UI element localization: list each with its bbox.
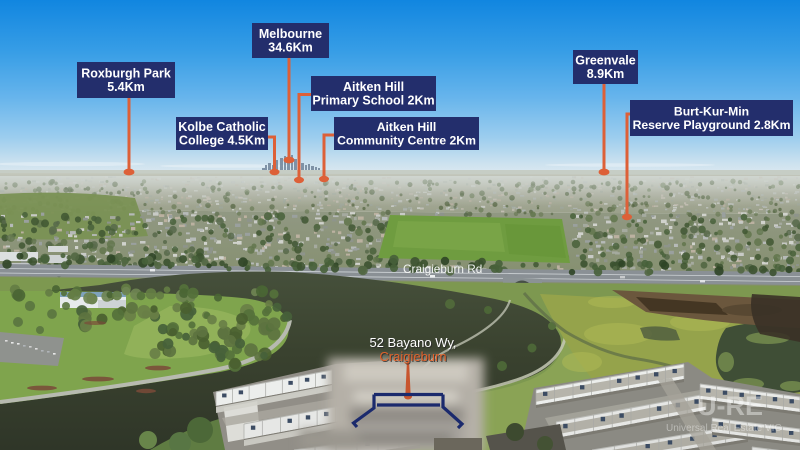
svg-text:Roxburgh Park: Roxburgh Park: [81, 67, 171, 81]
svg-text:Universal Real Estate VIC: Universal Real Estate VIC: [666, 423, 782, 434]
svg-text:College 4.5Km: College 4.5Km: [179, 134, 265, 148]
svg-text:Primary School 2Km: Primary School 2Km: [312, 94, 434, 108]
svg-text:Aitken Hill: Aitken Hill: [343, 80, 404, 94]
svg-text:52 Bayano Wy,: 52 Bayano Wy,: [369, 335, 456, 350]
svg-text:Craigieburn Rd: Craigieburn Rd: [403, 262, 482, 276]
svg-text:Melbourne: Melbourne: [259, 27, 322, 41]
svg-text:Aitken Hill: Aitken Hill: [377, 120, 437, 134]
svg-text:Kolbe Catholic: Kolbe Catholic: [178, 120, 266, 134]
svg-text:U-RE: U-RE: [697, 391, 763, 421]
svg-text:34.6Km: 34.6Km: [268, 41, 312, 55]
svg-text:Craigieburn: Craigieburn: [379, 349, 446, 364]
svg-text:Greenvale: Greenvale: [575, 54, 636, 68]
svg-text:Reserve Playground 2.8Km: Reserve Playground 2.8Km: [633, 118, 791, 132]
svg-text:8.9Km: 8.9Km: [587, 67, 625, 81]
svg-text:Community Centre 2Km: Community Centre 2Km: [337, 134, 476, 148]
svg-text:Burt-Kur-Min: Burt-Kur-Min: [674, 105, 749, 119]
svg-text:5.4Km: 5.4Km: [107, 80, 145, 94]
